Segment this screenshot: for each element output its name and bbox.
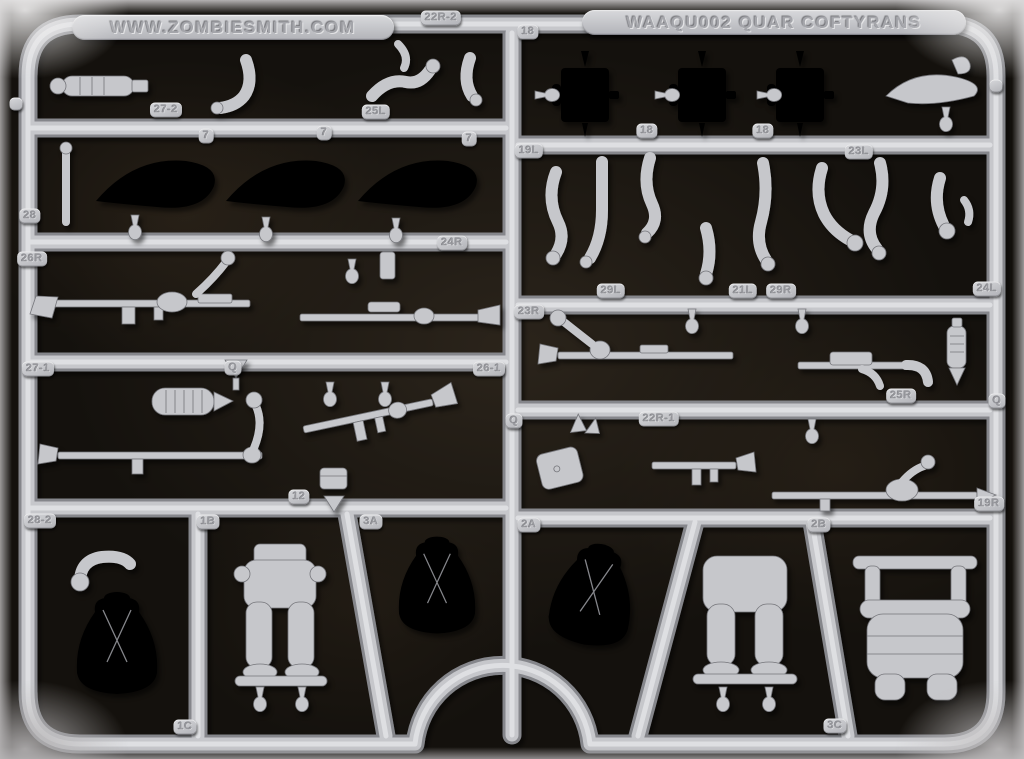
part-arm: [551, 172, 561, 254]
part-tag: 7: [199, 129, 214, 144]
part-arm: [870, 163, 883, 249]
part-arm: [818, 168, 850, 240]
part-tag: 27-1: [22, 362, 54, 377]
part-tag: [990, 80, 1003, 93]
part-cap: [358, 161, 477, 208]
part-silencer: [50, 76, 148, 96]
part-tag: 7: [462, 132, 477, 147]
part-arm: [590, 162, 602, 258]
sprue-rails: [28, 24, 996, 744]
part-tag: 27-2: [150, 103, 182, 118]
part-cap: [226, 161, 345, 208]
product-label: WAAQU002 QUAR COFTYRANS: [626, 13, 922, 33]
part-tag: 18: [636, 124, 657, 139]
part-tag: 22R-1: [639, 412, 679, 427]
part-legs-inverted: [853, 556, 977, 700]
part-tag: 28-2: [24, 514, 56, 529]
part-rifle: [300, 252, 500, 325]
part-rifle: [772, 479, 996, 511]
part-tag: 21L: [729, 284, 757, 299]
part-tag: 2B: [807, 518, 830, 533]
part-tag: 18: [517, 25, 538, 40]
part-tag: 1C: [173, 720, 196, 735]
part-legs: [693, 556, 797, 684]
part-canister: [152, 388, 233, 415]
product-bar: WAAQU002 QUAR COFTYRANS: [582, 10, 966, 35]
part-tag: 29R: [766, 284, 796, 299]
part-rifle: [38, 444, 262, 474]
part-tag: 25R: [886, 389, 916, 404]
part-submachine-gun: [300, 382, 460, 452]
part-tag: 19L: [515, 144, 543, 159]
part-tag: 23L: [845, 145, 873, 160]
part-carbine: [798, 352, 906, 369]
part-arm: [646, 158, 655, 233]
part-tag: 23R: [514, 305, 544, 320]
part-tag: 12: [288, 490, 309, 505]
part-torso: [545, 537, 642, 651]
sprue-photo: WWW.ZOMBIESMITH.COM WAAQU002 QUAR COFTYR…: [0, 0, 1024, 759]
part-arm: [220, 60, 250, 108]
part-rifle: [30, 292, 250, 324]
part-backpack: [552, 51, 619, 137]
part-arm: [706, 228, 710, 274]
part-rifle: [538, 341, 733, 364]
part-tag: 18: [752, 124, 773, 139]
brand-bar: WWW.ZOMBIESMITH.COM: [72, 15, 394, 40]
brand-label: WWW.ZOMBIESMITH.COM: [110, 18, 356, 38]
part-tag: 22R-2: [421, 11, 461, 26]
part-tag: 3A: [359, 515, 382, 530]
part-grenade: [947, 318, 966, 385]
part-tag: Q: [224, 361, 241, 376]
part-tag: 3C: [823, 719, 846, 734]
part-torso: [399, 537, 475, 634]
part-horn-blade: [886, 57, 977, 104]
part-arm: [759, 163, 766, 260]
part-submachine-gun: [652, 452, 756, 485]
part-tag: Q: [505, 414, 522, 429]
part-tag: Q: [988, 394, 1005, 409]
part-tag: 25L: [362, 105, 390, 120]
part-tag: [10, 98, 23, 111]
part-legs: [234, 544, 327, 686]
part-arm: [372, 70, 430, 96]
part-tag: 2A: [517, 518, 540, 533]
part-tag: 24L: [973, 282, 1001, 297]
part-tag: 24R: [437, 236, 467, 251]
part-tag: 19R: [974, 497, 1004, 512]
part-arm: [937, 178, 944, 226]
part-tag: 28: [19, 209, 40, 224]
part-tag: 7: [317, 126, 332, 141]
part-tag: 1B: [196, 515, 219, 530]
part-torso: [77, 592, 157, 694]
part-cap: [96, 161, 215, 208]
part-claw-hand: [528, 410, 610, 490]
part-arm: [466, 58, 472, 96]
part-tag: 26R: [17, 252, 47, 267]
part-tag: 26-1: [473, 362, 505, 377]
part-tag: 29L: [597, 284, 625, 299]
